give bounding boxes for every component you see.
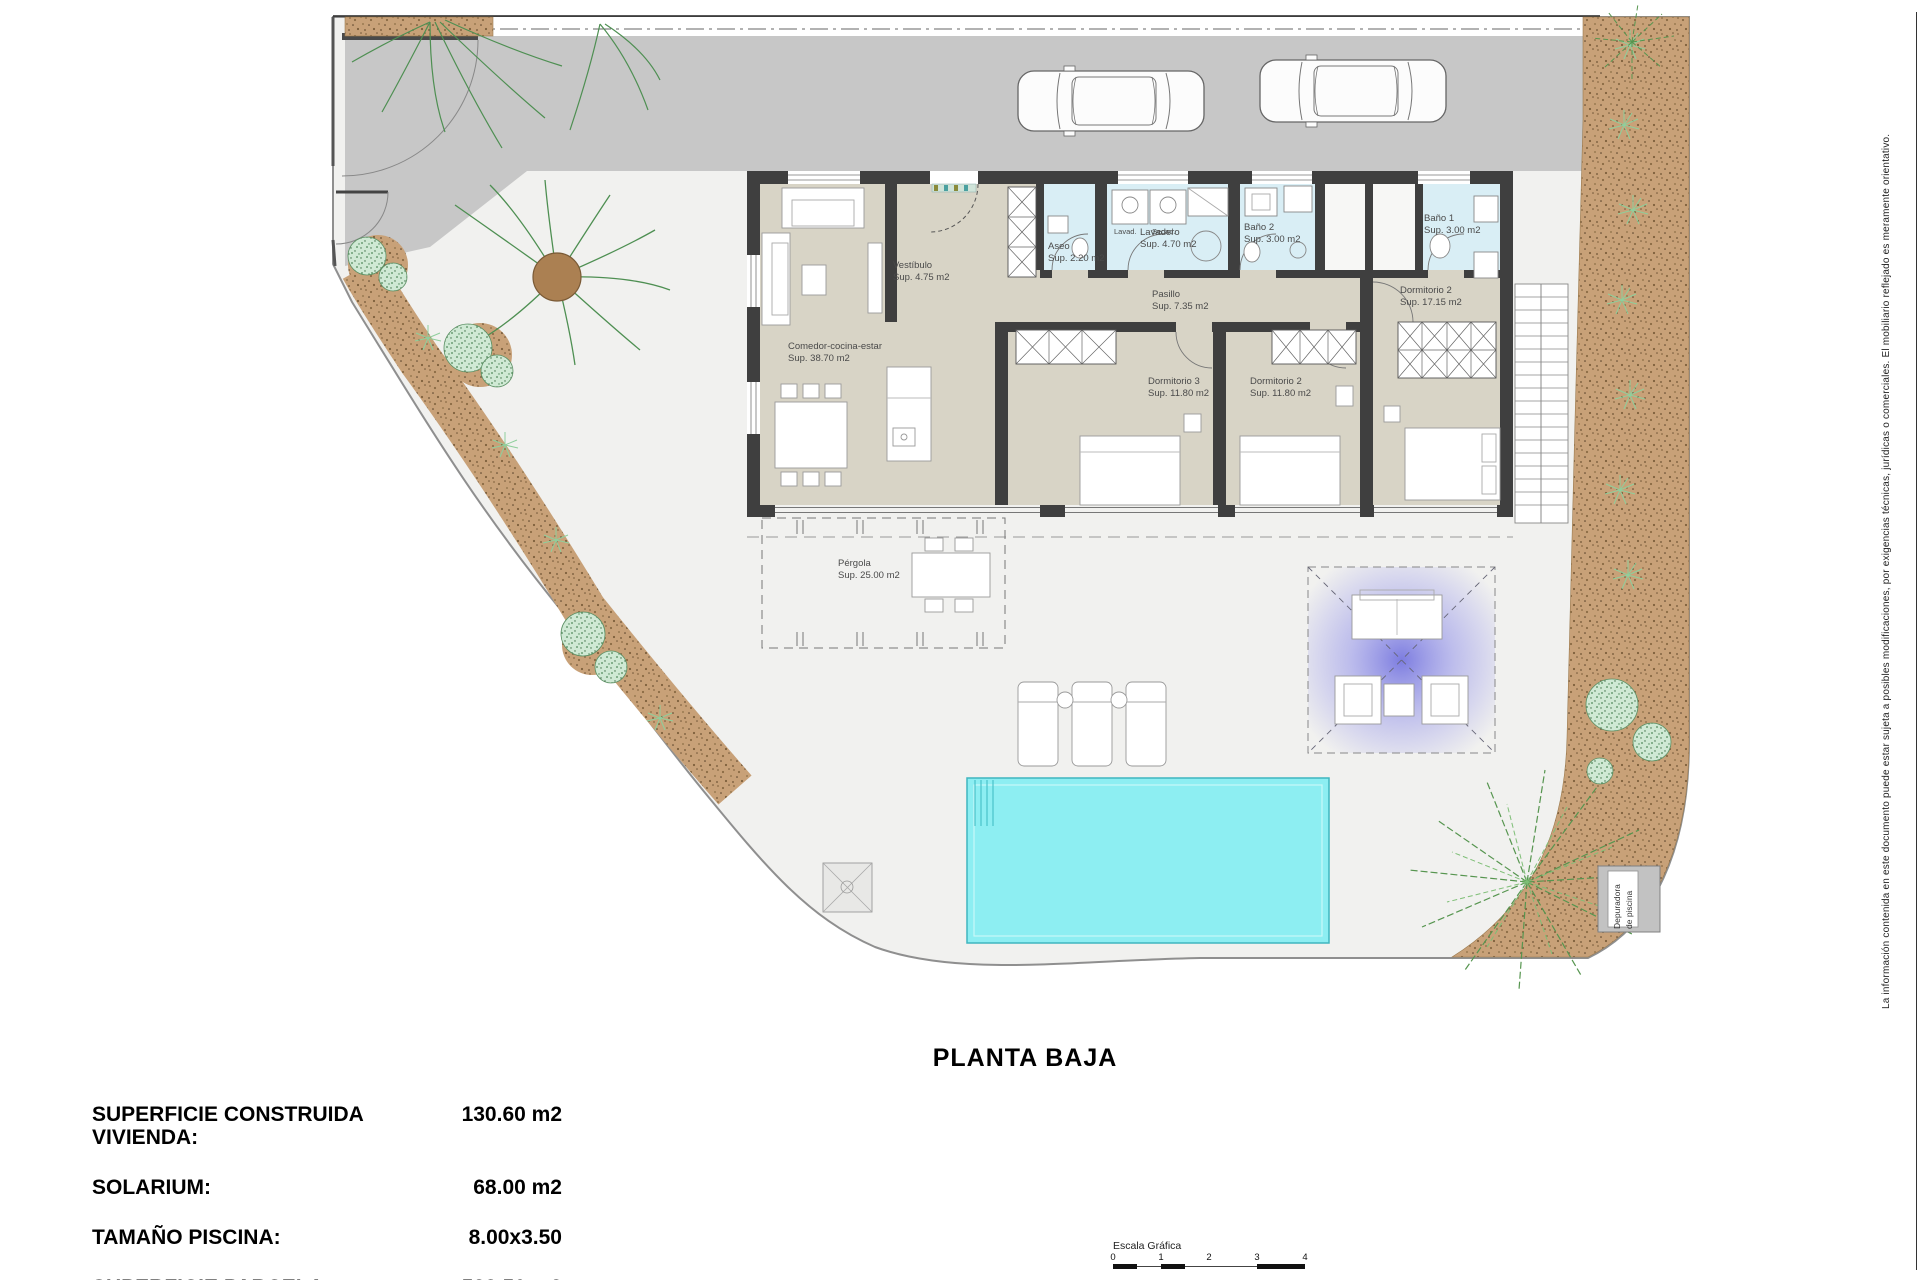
scale-tick: 0 bbox=[1110, 1252, 1115, 1263]
label-dorm1: Dormitorio 2 bbox=[1400, 285, 1452, 296]
lounger bbox=[1126, 682, 1166, 766]
nightstand bbox=[1336, 386, 1353, 406]
chair bbox=[803, 472, 819, 486]
site-plan-drawing: Depuradora de piscina Comedor-cocina-est… bbox=[0, 0, 1920, 1280]
pool-filter-unit: Depuradora de piscina bbox=[1598, 866, 1660, 932]
label-pasillo: Pasillo bbox=[1152, 289, 1180, 300]
svg-text:Sup. 3.00 m2: Sup. 3.00 m2 bbox=[1244, 234, 1301, 245]
floor-plan-page: Depuradora de piscina Comedor-cocina-est… bbox=[0, 0, 1920, 1280]
svg-text:Sup. 38.70 m2: Sup. 38.70 m2 bbox=[788, 353, 850, 364]
outdoor-chair bbox=[925, 538, 943, 551]
hall-wardrobe bbox=[1008, 187, 1036, 277]
washer bbox=[1112, 190, 1148, 224]
dorm2-wardrobe bbox=[1272, 330, 1356, 364]
bano2-cabinet bbox=[1284, 186, 1312, 212]
car-mirror bbox=[1064, 131, 1075, 136]
closet-2 bbox=[1373, 184, 1415, 270]
shower-pad bbox=[823, 863, 872, 912]
palm-trunk bbox=[533, 253, 581, 301]
dryer bbox=[1150, 190, 1186, 224]
car-mirror bbox=[1064, 66, 1075, 71]
outdoor-armchair bbox=[1335, 676, 1381, 724]
summary-row: TAMAÑO PISCINA: 8.00x3.50 bbox=[92, 1226, 562, 1249]
bed-dorm2 bbox=[1240, 436, 1340, 505]
bed-dorm3 bbox=[1080, 436, 1180, 505]
surface-summary: SUPERFICIE CONSTRUIDA VIVIENDA: 130.60 m… bbox=[92, 1103, 562, 1280]
pool-filter-label-line2: de piscina bbox=[1624, 890, 1634, 929]
summary-value: 130.60 m2 bbox=[462, 1103, 562, 1126]
svg-text:Sup. 3.00 m2: Sup. 3.00 m2 bbox=[1424, 225, 1481, 236]
sofa bbox=[782, 188, 864, 228]
summary-row: SUPERFICIE PARCELA: 522.50 m2 bbox=[92, 1276, 562, 1280]
side-table bbox=[1057, 692, 1073, 708]
dorm3-wardrobe bbox=[1016, 330, 1116, 364]
summary-row: SOLARIUM: 68.00 m2 bbox=[92, 1176, 562, 1199]
svg-text:Sup. 25.00 m2: Sup. 25.00 m2 bbox=[838, 570, 900, 581]
sofa-left bbox=[762, 233, 790, 325]
coffee-table bbox=[802, 265, 826, 295]
chair bbox=[825, 472, 841, 486]
scale-tick: 4 bbox=[1302, 1252, 1307, 1263]
chair bbox=[781, 384, 797, 398]
swimming-pool bbox=[967, 778, 1329, 943]
car-mirror bbox=[1306, 55, 1317, 60]
summary-value: 522.50 m2 bbox=[462, 1276, 562, 1280]
lounger bbox=[1018, 682, 1058, 766]
label-washer: Lavad. bbox=[1114, 227, 1137, 236]
aseo-sink bbox=[1048, 216, 1068, 233]
nightstand bbox=[1184, 414, 1201, 432]
svg-text:Sup. 4.70 m2: Sup. 4.70 m2 bbox=[1140, 239, 1197, 250]
kitchen-island bbox=[887, 367, 931, 461]
summary-label: SUPERFICIE CONSTRUIDA VIVIENDA: bbox=[92, 1103, 462, 1149]
bano2-toilet bbox=[1244, 242, 1260, 262]
page-title: PLANTA BAJA bbox=[860, 1044, 1190, 1073]
tv-console bbox=[868, 243, 882, 313]
lounger bbox=[1072, 682, 1112, 766]
label-dryer: Secad. bbox=[1152, 227, 1175, 236]
chillout-area bbox=[1308, 567, 1495, 753]
svg-text:Sup. 2.20 m2: Sup. 2.20 m2 bbox=[1048, 253, 1105, 264]
bed-dorm1 bbox=[1405, 428, 1500, 500]
sidewalk bbox=[345, 17, 1583, 36]
sun-loungers bbox=[1018, 682, 1166, 766]
outdoor-table bbox=[912, 553, 990, 597]
bano1-sink bbox=[1474, 252, 1498, 278]
outdoor-chair bbox=[925, 599, 943, 612]
svg-text:Sup. 4.75 m2: Sup. 4.75 m2 bbox=[893, 272, 950, 283]
graphic-scale: Escala Gráfica 0 1 2 3 4 bbox=[1113, 1240, 1305, 1276]
exterior-stairs bbox=[1515, 284, 1568, 523]
label-bano2: Baño 2 bbox=[1244, 222, 1274, 233]
label-aseo: Aseo bbox=[1048, 241, 1070, 252]
outdoor-chair bbox=[955, 538, 973, 551]
label-vestibulo: Vestíbulo bbox=[893, 260, 932, 271]
bano1-toilet bbox=[1430, 234, 1450, 258]
chair bbox=[781, 472, 797, 486]
side-table bbox=[1111, 692, 1127, 708]
pool-filter-label-line1: Depuradora bbox=[1612, 884, 1622, 929]
car bbox=[1260, 55, 1446, 127]
chair bbox=[825, 384, 841, 398]
summary-label: TAMAÑO PISCINA: bbox=[92, 1226, 281, 1249]
scale-tick: 3 bbox=[1254, 1252, 1259, 1263]
scale-tick: 1 bbox=[1158, 1252, 1163, 1263]
scale-ticks: 0 1 2 3 4 bbox=[1113, 1252, 1305, 1263]
dorm1-wardrobe bbox=[1398, 322, 1496, 378]
label-dorm3: Dormitorio 3 bbox=[1148, 376, 1200, 387]
svg-text:Sup. 17.15 m2: Sup. 17.15 m2 bbox=[1400, 297, 1462, 308]
outdoor-armchair bbox=[1422, 676, 1468, 724]
summary-label: SUPERFICIE PARCELA: bbox=[92, 1276, 331, 1280]
scale-tick: 2 bbox=[1206, 1252, 1211, 1263]
outdoor-chair bbox=[955, 599, 973, 612]
svg-text:Sup. 11.80 m2: Sup. 11.80 m2 bbox=[1250, 388, 1311, 399]
label-pergola: Pérgola bbox=[838, 558, 871, 569]
label-dorm2: Dormitorio 2 bbox=[1250, 376, 1302, 387]
chair bbox=[803, 384, 819, 398]
summary-label: SOLARIUM: bbox=[92, 1176, 211, 1199]
car bbox=[1018, 66, 1204, 136]
svg-text:Sup. 7.35 m2: Sup. 7.35 m2 bbox=[1152, 301, 1209, 312]
closet-1 bbox=[1325, 184, 1365, 270]
svg-text:Sup. 11.80 m2: Sup. 11.80 m2 bbox=[1148, 388, 1209, 399]
bano2-shower bbox=[1245, 188, 1277, 216]
scale-title: Escala Gráfica bbox=[1113, 1240, 1305, 1252]
bano1-shower bbox=[1474, 196, 1498, 222]
summary-value: 68.00 m2 bbox=[473, 1176, 562, 1199]
label-comedor: Comedor-cocina-estar bbox=[788, 341, 882, 352]
dining-table bbox=[775, 402, 847, 468]
car-mirror bbox=[1306, 122, 1317, 127]
legal-disclaimer: La información contenida en este documen… bbox=[1881, 24, 1892, 1009]
outdoor-coffee-table bbox=[1384, 684, 1414, 716]
nightstand bbox=[1384, 406, 1400, 422]
page-right-border bbox=[1916, 12, 1917, 1270]
scale-bar-strip bbox=[1113, 1264, 1305, 1270]
label-bano1: Baño 1 bbox=[1424, 213, 1454, 224]
summary-value: 8.00x3.50 bbox=[469, 1226, 562, 1249]
summary-row: SUPERFICIE CONSTRUIDA VIVIENDA: 130.60 m… bbox=[92, 1103, 562, 1149]
